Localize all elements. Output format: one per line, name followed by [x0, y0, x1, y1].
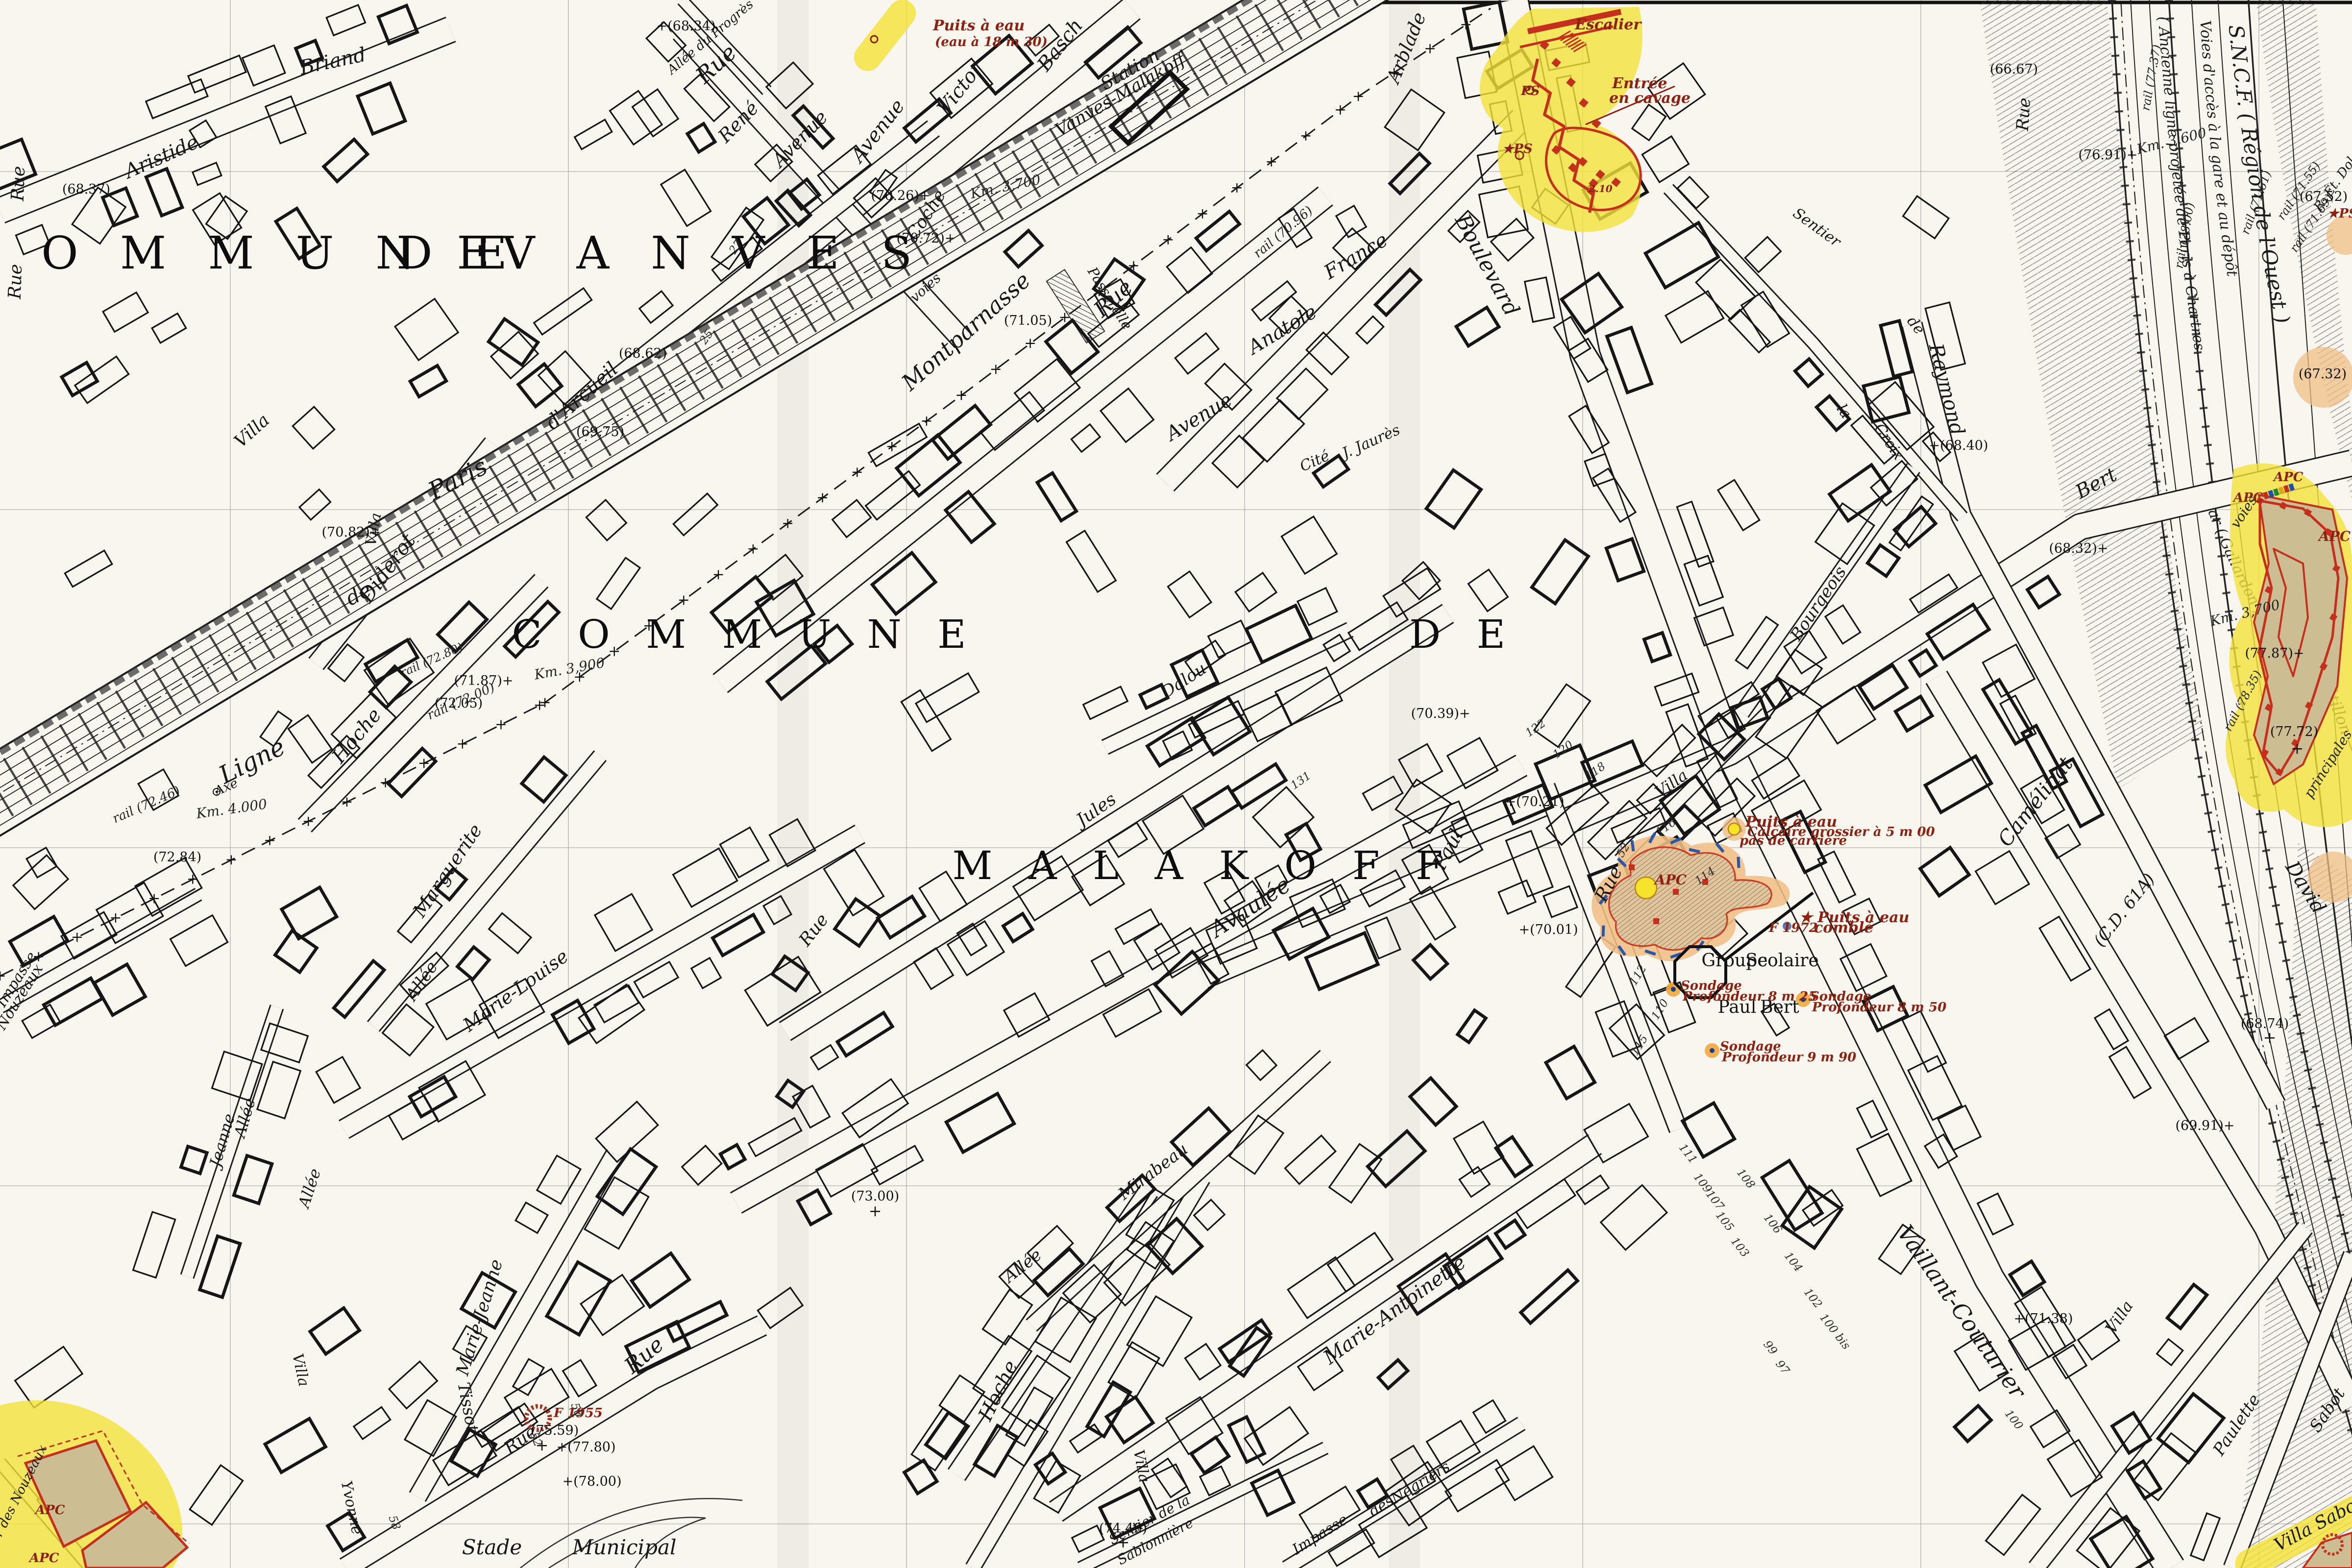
elevation-marker: +(70.21) — [1505, 794, 1565, 809]
quarry-annotation: (eau à 18 m 30) — [935, 35, 1048, 49]
quarry-annotation: APC — [2317, 528, 2351, 544]
street-label: Rue — [2013, 97, 2035, 132]
quarry-annotation: F 1972 — [1768, 921, 1818, 935]
boundary-cross: + — [990, 361, 1002, 378]
boundary-cross: + — [816, 489, 829, 506]
boundary-cross: + — [678, 591, 690, 609]
boundary-cross: + — [782, 514, 794, 532]
place-label: Scolaire — [1745, 951, 1819, 971]
quarry-annotation: APC — [2232, 490, 2263, 505]
boundary-cross: + — [1424, 40, 1436, 57]
elevation-marker: (70.72)+ — [897, 231, 956, 246]
quarry-annotation: 2.10 — [1588, 183, 1613, 195]
quarry-annotation: Profondeur 8 m 25 — [1682, 989, 1817, 1004]
quarry-annotation: comblé — [1814, 919, 1873, 936]
boundary-cross: + — [1265, 153, 1277, 171]
quarry-annotation: Profondeur 9 m 90 — [1721, 1050, 1856, 1065]
boundary-cross: + — [851, 464, 863, 481]
elevation-marker: (68.32)+ — [2049, 541, 2108, 556]
elevation-marker: +(71.38) — [2014, 1311, 2073, 1326]
scanned-quarry-map-sheet: ( Ancienne ligne projetée de Paris à Cha… — [0, 0, 2352, 1568]
boundary-cross: + — [920, 412, 932, 429]
boundary-cross: + — [886, 438, 898, 455]
elevation-cross: + — [1117, 1533, 1130, 1551]
commune-title: C O M M U N E — [512, 612, 978, 657]
map-canvas: ( Ancienne ligne projetée de Paris à Cha… — [0, 0, 2352, 1568]
boundary-cross: + — [1162, 231, 1174, 248]
boundary-cross: + — [302, 812, 315, 830]
boundary-cross: + — [539, 694, 551, 711]
elevation-marker: +(70.01) — [1519, 922, 1578, 937]
boundary-cross: + — [1196, 205, 1208, 222]
boundary-cross: + — [1352, 88, 1364, 105]
elevation-marker: (77.87)+ — [2245, 646, 2304, 661]
boundary-cross: + — [456, 735, 468, 752]
boundary-cross: + — [71, 929, 83, 946]
quarry-annotation: Escalier — [1574, 16, 1642, 33]
gallery-pillar — [1629, 864, 1635, 870]
boundary-cross: + — [747, 540, 759, 558]
elevation-cross: + — [2263, 1028, 2277, 1047]
gallery-pillar — [1673, 889, 1679, 895]
quarry-annotation: PS — [1520, 84, 1540, 98]
elevation-marker: (77.72) — [2270, 724, 2318, 739]
street-label: Rue — [5, 264, 26, 300]
boundary-cross: + — [1334, 101, 1347, 119]
sondage-dot — [1671, 987, 1676, 992]
elevation-marker: (71.05) — [1004, 313, 1052, 328]
quarry-annotation: APC — [28, 1551, 59, 1566]
boundary-cross: + — [264, 832, 276, 849]
elevation-marker: (66.67) — [1990, 62, 2038, 77]
elevation-marker: (68.62) — [619, 346, 667, 361]
commune-title: D E — [1409, 612, 1517, 657]
apc-well — [1635, 877, 1657, 899]
quarry-annotation: Puits à eau — [932, 17, 1025, 34]
elevation-marker: (70.82)+ — [322, 525, 381, 540]
elevation-marker: (69.91)+ — [2176, 1118, 2235, 1133]
boundary-cross: + — [1231, 179, 1243, 196]
elevation-marker: (67.52) — [2300, 189, 2348, 204]
elevation-marker: (71.87)+ — [454, 673, 514, 688]
elevation-marker: (72.84) — [153, 850, 201, 865]
elevation-marker: (68.37) — [62, 182, 110, 197]
street-label: Municipal — [572, 1535, 677, 1559]
sondage-dot — [1710, 1048, 1715, 1053]
elevation-marker: (69.75) — [576, 424, 624, 440]
quarry-annotation: APC — [1653, 872, 1687, 888]
boundary-cross: + — [1024, 335, 1036, 352]
elevation-marker: (70.26)+ — [871, 188, 931, 203]
quarry-annotation: APC — [34, 1503, 65, 1518]
street-label: Rue — [8, 166, 29, 202]
quarry-annotation: pas de carrière — [1739, 833, 1847, 848]
puits-a-eau-dot — [1728, 823, 1740, 835]
quarry-annotation: Profondeur 8 m 50 — [1812, 1000, 1946, 1015]
elevation-marker: (72.05) — [435, 696, 483, 711]
elevation-marker: +(68.34) — [657, 19, 716, 34]
boundary-cross: + — [225, 851, 237, 868]
elevation-marker: (70.39)+ — [1411, 706, 1470, 721]
elevation-marker: +(68.40) — [1929, 438, 1988, 453]
commune-title: V A N V E S — [502, 227, 926, 279]
boundary-cross: + — [341, 793, 353, 810]
commune-title: M A L A K O F F — [953, 843, 1455, 888]
street-label: Stade — [462, 1535, 522, 1559]
quarry-annotation: ★PSc — [2327, 206, 2352, 221]
quarry-annotation: en cavage — [1609, 90, 1690, 107]
gallery-pillar — [1653, 918, 1659, 924]
boundary-cross: + — [712, 566, 725, 583]
elevation-marker: +(78.00) — [563, 1474, 622, 1489]
quarry-annotation: ★PS — [1502, 142, 1533, 156]
quarry-annotation: APC — [2272, 470, 2303, 485]
elevation-cross: + — [869, 1201, 882, 1220]
elevation-marker: (76.91)+ — [2079, 147, 2138, 163]
elevation-cross: + — [2291, 739, 2304, 758]
elevation-marker: (67.32) — [2299, 367, 2347, 382]
boundary-cross: + — [955, 387, 967, 404]
boundary-cross: + — [495, 716, 507, 733]
boundary-cross: + — [1299, 127, 1312, 145]
elevation-marker: +(77.80) — [557, 1440, 616, 1455]
